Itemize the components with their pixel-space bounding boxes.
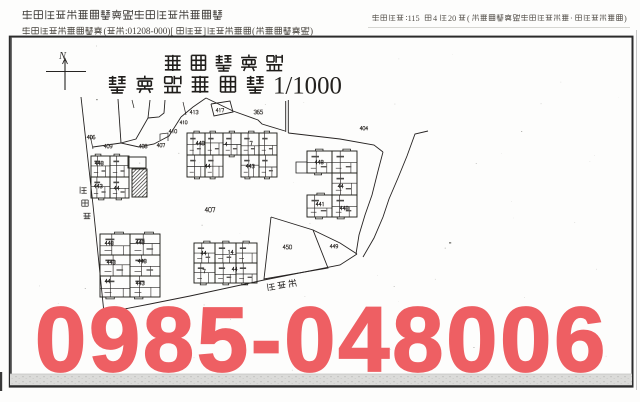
- svg-text:(: (: [104, 26, 107, 36]
- svg-text:]: ]: [203, 26, 206, 36]
- svg-text:20: 20: [448, 14, 456, 23]
- svg-text:0985-048006: 0985-048006: [35, 289, 608, 391]
- svg-text:4: 4: [433, 14, 437, 23]
- svg-text:(: (: [252, 26, 255, 36]
- svg-text:1/1000: 1/1000: [273, 73, 342, 100]
- svg-text:·: ·: [570, 14, 573, 23]
- svg-text::01208-000)[: :01208-000)[: [125, 26, 173, 36]
- svg-text:): ): [624, 14, 627, 23]
- svg-text:∶115: ∶115: [406, 14, 420, 23]
- svg-text:(: (: [467, 14, 470, 23]
- svg-text:N: N: [58, 51, 67, 62]
- svg-text:): ): [310, 26, 313, 36]
